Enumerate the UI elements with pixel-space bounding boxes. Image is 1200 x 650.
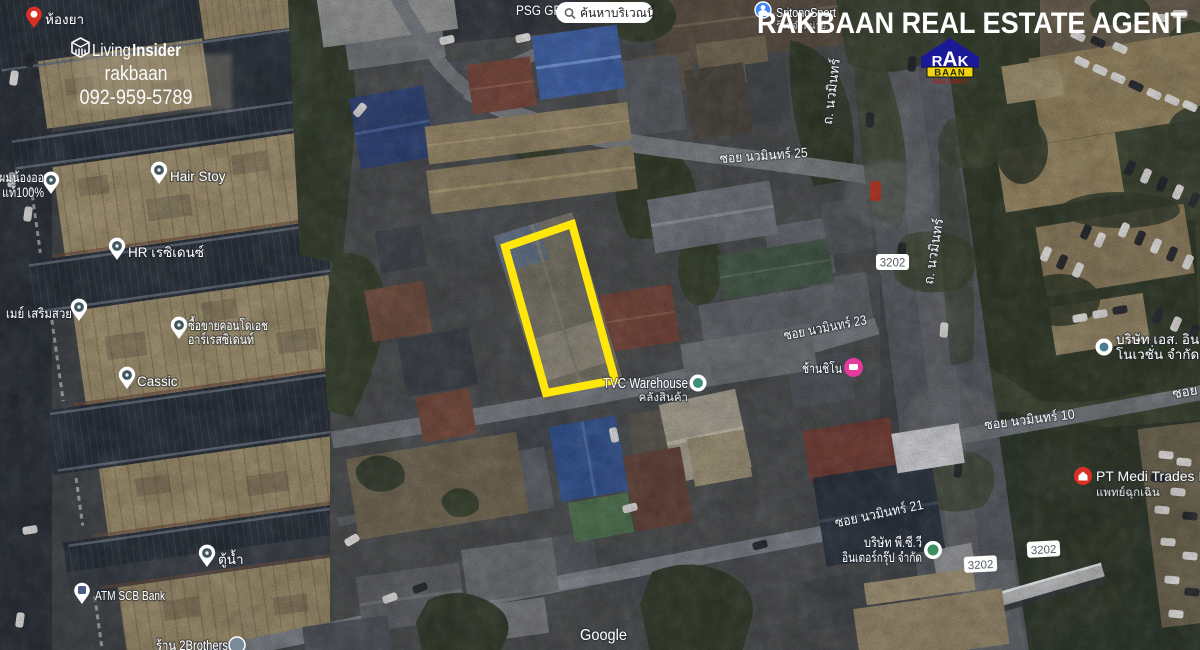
svg-text:3202: 3202: [880, 258, 906, 270]
svg-text:แพทย์ฉุกเฉิน: แพทย์ฉุกเฉิน: [1096, 485, 1160, 499]
svg-text:โนเวชั่น จำกัด: โนเวชั่น จำกัด: [1116, 345, 1199, 362]
svg-text:ผมน้องออ: ผมน้องออ: [0, 170, 44, 185]
svg-text:rakbaan: rakbaan: [105, 63, 168, 85]
svg-text:Living Insider: Living Insider: [92, 40, 181, 60]
svg-text:ATM SCB Bank: ATM SCB Bank: [95, 589, 166, 603]
svg-text:PSG GR: PSG GR: [516, 3, 562, 18]
svg-text:บริษัท เอส. อิน: บริษัท เอส. อิน: [1116, 332, 1199, 347]
svg-text:Google: Google: [580, 627, 627, 644]
svg-text:ซื้อขายคอนโดเอช: ซื้อขายคอนโดเอช: [188, 315, 268, 333]
svg-text:Hair Stoy: Hair Stoy: [170, 169, 226, 184]
svg-text:ตู้น้ำ: ตู้น้ำ: [218, 549, 244, 568]
svg-text:ค้นหาบริเวณนี้: ค้นหาบริเวณนี้: [580, 4, 656, 20]
svg-text:BAAN: BAAN: [934, 68, 965, 79]
svg-text:TVC Warehouse: TVC Warehouse: [603, 376, 688, 392]
svg-text:PT Medi Trades Ltd.,Pa: PT Medi Trades Ltd.,Pa: [1096, 468, 1200, 484]
svg-text:RAKBAAN REAL ESTATE AGENT: RAKBAAN REAL ESTATE AGENT: [757, 7, 1187, 40]
svg-text:3202: 3202: [967, 559, 993, 572]
svg-text:เมย์ เสริมสวย: เมย์ เสริมสวย: [6, 305, 72, 321]
svg-text:คลังสินค้า: คลังสินค้า: [639, 391, 688, 404]
svg-text:แท้100%: แท้100%: [2, 185, 44, 200]
svg-text:อินเตอร์กรุ๊ป จำกัด: อินเตอร์กรุ๊ป จำกัด: [842, 549, 922, 566]
svg-text:REAL ESTATE: REAL ESTATE: [933, 80, 967, 86]
svg-text:HR เรซิเดนซ์: HR เรซิเดนซ์: [128, 244, 204, 260]
svg-text:3202: 3202: [1030, 544, 1056, 557]
svg-text:ร้าน 2Brothers: ร้าน 2Brothers: [156, 638, 228, 650]
svg-text:Cassic: Cassic: [137, 374, 178, 389]
svg-text:ช้านชิโน: ช้านชิโน: [802, 360, 842, 376]
svg-text:อาร์เรสซิเดนท์: อาร์เรสซิเดนท์: [188, 331, 254, 347]
svg-text:ห้องยา: ห้องยา: [45, 12, 84, 27]
svg-text:092-959-5789: 092-959-5789: [80, 86, 193, 109]
svg-text:บริษัท พี.ซี.วี: บริษัท พี.ซี.วี: [864, 535, 922, 550]
